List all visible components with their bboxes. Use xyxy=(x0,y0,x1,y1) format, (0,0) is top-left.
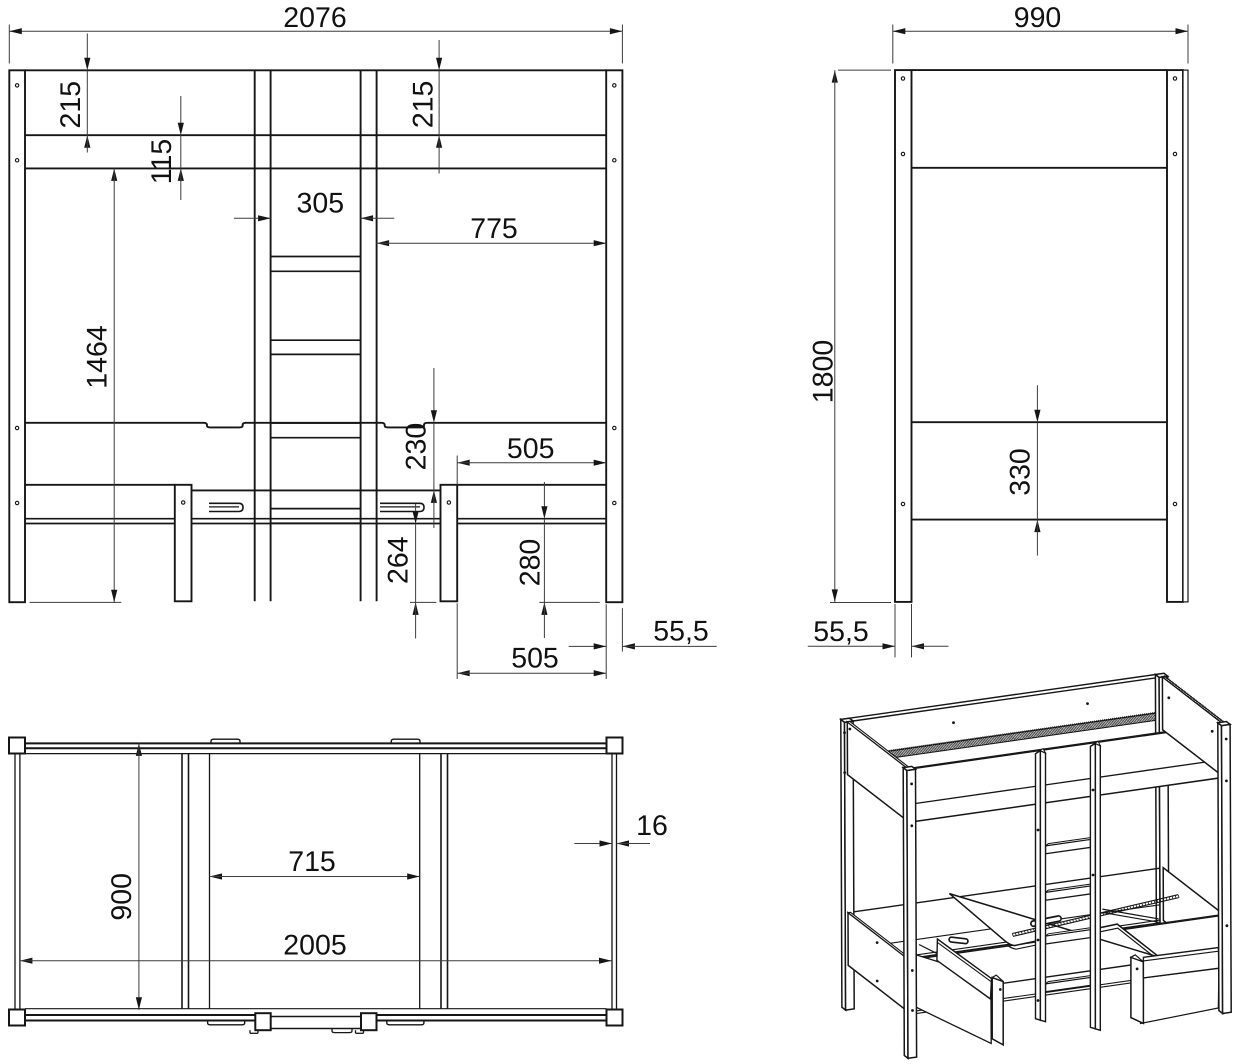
svg-text:1464: 1464 xyxy=(81,325,113,389)
svg-text:264: 264 xyxy=(383,536,415,584)
svg-text:305: 305 xyxy=(297,187,345,219)
svg-text:505: 505 xyxy=(507,433,555,465)
svg-text:215: 215 xyxy=(408,81,440,129)
svg-text:215: 215 xyxy=(55,81,87,129)
svg-text:715: 715 xyxy=(288,846,336,878)
svg-text:55,5: 55,5 xyxy=(813,616,868,648)
svg-text:330: 330 xyxy=(1004,448,1036,496)
svg-text:16: 16 xyxy=(636,810,668,842)
svg-text:115: 115 xyxy=(146,139,178,184)
svg-text:230: 230 xyxy=(400,423,432,471)
svg-text:990: 990 xyxy=(1014,2,1062,34)
svg-text:775: 775 xyxy=(470,213,518,245)
svg-text:1800: 1800 xyxy=(807,340,839,403)
svg-text:2076: 2076 xyxy=(283,2,346,34)
svg-text:55,5: 55,5 xyxy=(653,615,708,647)
svg-text:505: 505 xyxy=(511,643,559,675)
svg-text:2005: 2005 xyxy=(283,930,346,962)
svg-text:900: 900 xyxy=(106,873,138,921)
svg-text:280: 280 xyxy=(514,539,546,587)
